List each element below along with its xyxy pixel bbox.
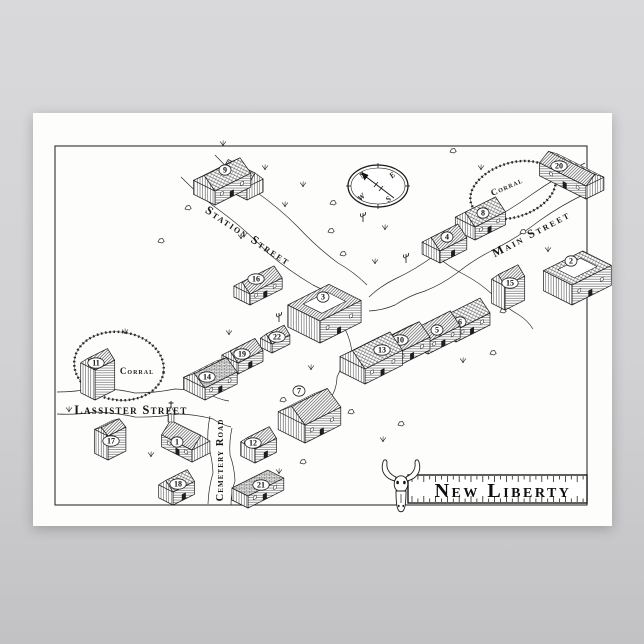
building-number: 18	[174, 480, 182, 489]
station-street-label: Station Street	[203, 203, 294, 269]
rock-icon	[490, 351, 496, 356]
building-number: 17	[107, 437, 115, 446]
rock-icon	[328, 229, 334, 234]
grass-icon	[545, 247, 551, 253]
town-name-banner: New Liberty	[382, 460, 587, 512]
building-number: 5	[435, 326, 439, 335]
building-16: 16	[234, 266, 282, 305]
building-number: 20	[555, 162, 563, 171]
rock-icon	[348, 410, 354, 415]
cactus-icon	[276, 312, 281, 322]
building-2: 2	[543, 251, 611, 305]
grass-icon	[380, 437, 386, 443]
cemetery-road-label: Cemetery Road	[215, 419, 226, 502]
building-12: 12	[241, 427, 277, 463]
building-number: 21	[257, 481, 265, 490]
rock-icon	[280, 398, 286, 403]
grass-icon	[372, 259, 378, 265]
corral-label-east: Corral	[489, 175, 524, 198]
building-4: 4	[422, 224, 467, 263]
grass-icon	[460, 358, 466, 364]
building-number: 3	[321, 293, 325, 302]
building-number: 13	[378, 346, 386, 355]
compass-rose-icon: N E S W	[346, 163, 410, 209]
corral-label-west: Corral	[120, 366, 154, 376]
page-background: { "page": {"bg_top":"#d9d9db","bg_bottom…	[0, 0, 644, 644]
building-20: 20	[540, 151, 604, 199]
building-21: 21	[232, 470, 284, 508]
grass-icon	[478, 165, 484, 171]
cactus-icon	[360, 212, 365, 222]
cactus-icon	[403, 253, 408, 263]
grass-icon	[382, 225, 388, 231]
building-number: 19	[238, 350, 246, 359]
rock-icon	[185, 206, 191, 211]
grass-icon	[300, 182, 306, 188]
grass-icon	[226, 330, 232, 336]
building-7: 7	[278, 386, 341, 443]
town-name: New Liberty	[435, 480, 572, 502]
building-number: 22	[273, 333, 281, 342]
rock-icon	[300, 460, 306, 465]
lassister-street-label: Lassister Street	[74, 403, 187, 417]
road-edge	[208, 416, 213, 504]
rock-icon	[330, 201, 336, 206]
building-number: 11	[92, 359, 100, 368]
grass-icon	[148, 452, 154, 458]
building-15: 15	[492, 265, 525, 310]
poster: 20984152163651013221914117121711821 N E …	[33, 113, 612, 526]
building-number: 15	[506, 279, 514, 288]
building-11: 11	[81, 349, 115, 400]
grass-icon	[66, 407, 72, 413]
building-number: 1	[175, 438, 179, 447]
building-number: 2	[569, 257, 573, 266]
building-3: 3	[288, 284, 361, 343]
rock-icon	[158, 239, 164, 244]
buildings: 20984152163651013221914117121711821	[81, 151, 612, 508]
building-17: 17	[95, 419, 126, 460]
grass-icon	[308, 365, 314, 371]
building-number: 4	[445, 233, 449, 242]
building-14: 14	[184, 358, 238, 401]
rock-icon	[398, 422, 404, 427]
rock-icon	[450, 149, 456, 154]
building-number: 14	[203, 373, 211, 382]
rock-icon	[340, 252, 346, 257]
building-number: 12	[249, 439, 257, 448]
building-number: 7	[297, 387, 301, 396]
grass-icon	[220, 141, 226, 147]
building-number: 9	[223, 166, 227, 175]
grass-icon	[276, 469, 282, 475]
building-18: 18	[159, 470, 195, 505]
building-number: 8	[481, 209, 485, 218]
building-number: 16	[252, 275, 260, 284]
grass-icon	[282, 202, 288, 208]
grass-icon	[262, 165, 268, 171]
building-22: 22	[260, 325, 290, 353]
town-map: 20984152163651013221914117121711821 N E …	[33, 113, 612, 526]
